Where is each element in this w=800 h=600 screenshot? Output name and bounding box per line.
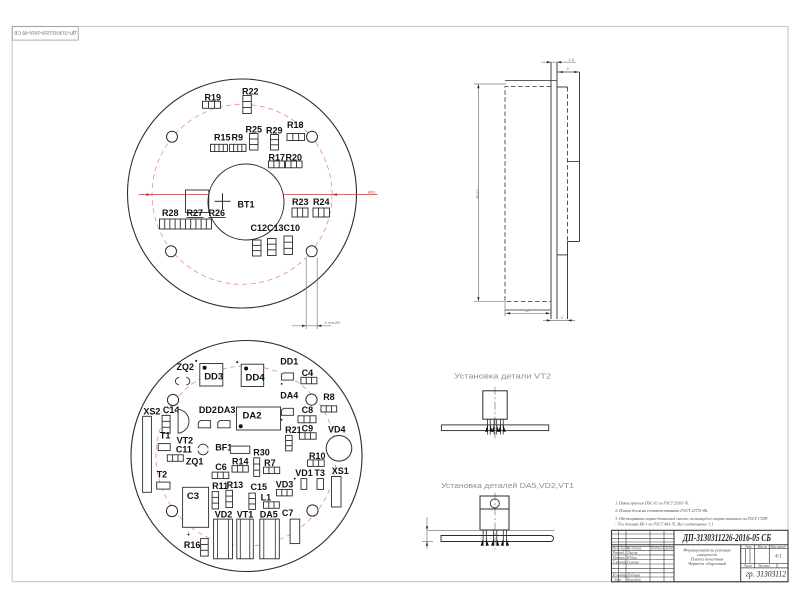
svg-text:Установка деталей DА5,VD2,VТ: Установка деталей DА5,VD2,VТ1 bbox=[441, 482, 574, 490]
svg-text:C15: C15 bbox=[251, 482, 268, 492]
svg-text:VD4: VD4 bbox=[328, 425, 346, 435]
svg-text:Разраб.: Разраб. bbox=[612, 551, 625, 555]
svg-text:4 отв.Ø3: 4 отв.Ø3 bbox=[325, 320, 342, 325]
svg-text:Чертёж сборочный: Чертёж сборочный bbox=[688, 561, 727, 566]
svg-text:T1: T1 bbox=[160, 431, 171, 441]
svg-text:Коробей: Коробей bbox=[626, 577, 641, 582]
svg-text:R16: R16 bbox=[184, 540, 201, 550]
svg-text:R15: R15 bbox=[214, 132, 231, 142]
svg-text:ДП-3130311226-2016-05 СБ: ДП-3130311226-2016-05 СБ bbox=[682, 533, 771, 544]
svg-text:XS1: XS1 bbox=[332, 466, 349, 476]
svg-text:Подпись: Подпись bbox=[650, 547, 665, 551]
svg-text:R28: R28 bbox=[162, 208, 179, 218]
svg-text:DA4: DA4 bbox=[280, 391, 298, 401]
svg-text:DA2: DA2 bbox=[243, 411, 262, 422]
svg-text:Листов: Листов bbox=[757, 564, 770, 568]
svg-text:C11: C11 bbox=[176, 445, 192, 455]
svg-text:R19: R19 bbox=[205, 92, 222, 102]
svg-text:- 76 и бензина БР-1 по ГОСТ 44: - 76 и бензина БР-1 по ГОСТ 443-76. Всё … bbox=[615, 521, 713, 526]
svg-text:C4: C4 bbox=[302, 368, 314, 378]
svg-text:R7: R7 bbox=[264, 458, 276, 468]
svg-text:BF1: BF1 bbox=[215, 443, 232, 453]
svg-text:T2: T2 bbox=[157, 470, 168, 480]
svg-text:Сонова: Сонова bbox=[627, 560, 639, 564]
svg-text:R18: R18 bbox=[287, 120, 304, 130]
svg-text:Дубовик: Дубовик bbox=[626, 573, 640, 577]
svg-text:VD1: VD1 bbox=[295, 468, 313, 478]
svg-text:VT1: VT1 bbox=[237, 510, 254, 520]
svg-text:ZQ1: ZQ1 bbox=[186, 457, 204, 467]
svg-text:C10: C10 bbox=[284, 223, 301, 233]
svg-text:Юдин: Юдин bbox=[626, 556, 637, 560]
svg-text:+: + bbox=[187, 532, 191, 539]
svg-text:12: 12 bbox=[525, 308, 530, 313]
svg-text:Масса: Масса bbox=[757, 545, 768, 549]
svg-text:VD2: VD2 bbox=[215, 510, 233, 520]
svg-text:R22: R22 bbox=[242, 86, 259, 96]
svg-text:1. Паять припоем ПОС-61 по ГОС: 1. Паять припоем ПОС-61 по ГОСТ 21931-76… bbox=[615, 501, 689, 506]
svg-text:ZQ2: ZQ2 bbox=[177, 362, 195, 372]
svg-text:C8: C8 bbox=[302, 405, 314, 415]
svg-text:C13: C13 bbox=[267, 223, 284, 233]
svg-text:Масштаб: Масштаб bbox=[770, 545, 786, 549]
svg-text:R8: R8 bbox=[323, 392, 335, 402]
svg-text:BT1: BT1 bbox=[238, 200, 255, 210]
svg-text:4:1: 4:1 bbox=[775, 555, 782, 560]
svg-text:R29: R29 bbox=[266, 125, 283, 135]
svg-text:R25: R25 bbox=[246, 124, 263, 134]
svg-text:Лит.: Лит. bbox=[744, 545, 753, 549]
svg-text:Т.контр.: Т.контр. bbox=[613, 560, 627, 564]
svg-text:DD4: DD4 bbox=[246, 373, 266, 384]
svg-text:Н.контр.: Н.контр. bbox=[612, 573, 628, 577]
svg-text:VD3: VD3 bbox=[276, 480, 294, 490]
svg-text:L1: L1 bbox=[261, 492, 272, 502]
svg-text:1,5: 1,5 bbox=[569, 57, 575, 62]
svg-text:Ø91: Ø91 bbox=[368, 189, 376, 194]
svg-text:DD3: DD3 bbox=[204, 372, 223, 383]
svg-text:Провер.: Провер. bbox=[612, 556, 626, 560]
svg-text:DA3: DA3 bbox=[217, 405, 235, 415]
svg-text:T3: T3 bbox=[314, 468, 325, 478]
svg-text:C3: C3 bbox=[187, 491, 199, 502]
svg-text:C9: C9 bbox=[302, 424, 314, 434]
svg-text:R26: R26 bbox=[209, 208, 226, 218]
svg-text:Дата: Дата bbox=[664, 547, 674, 551]
svg-text:C12: C12 bbox=[251, 223, 268, 233]
svg-text:Установка детали VТ2: Установка детали VТ2 bbox=[454, 373, 551, 380]
svg-text:Лысов: Лысов bbox=[626, 551, 638, 555]
svg-text:R23: R23 bbox=[292, 197, 309, 207]
svg-text:Утв.: Утв. bbox=[614, 578, 622, 582]
svg-text:R13: R13 bbox=[227, 480, 244, 490]
svg-text:R24: R24 bbox=[313, 197, 330, 207]
svg-text:C7: C7 bbox=[282, 508, 294, 518]
svg-text:DD2: DD2 bbox=[199, 405, 217, 415]
svg-text:DD1: DD1 bbox=[280, 356, 298, 366]
svg-text:C14: C14 bbox=[163, 405, 180, 415]
svg-text:DA5: DA5 bbox=[260, 510, 278, 520]
svg-text:гр. 31303112: гр. 31303112 bbox=[746, 569, 786, 578]
svg-text:C6: C6 bbox=[215, 462, 227, 472]
svg-text:2. Плата должна соответствоват: 2. Плата должна соответствовать ГОСТ 237… bbox=[615, 508, 708, 513]
svg-text:R9: R9 bbox=[232, 132, 244, 142]
svg-text:R27: R27 bbox=[187, 208, 204, 218]
svg-text:Лист: Лист bbox=[743, 564, 753, 568]
svg-text:R30: R30 bbox=[253, 448, 270, 458]
svg-text:XS2: XS2 bbox=[143, 407, 160, 417]
svg-text:Ø110: Ø110 bbox=[475, 188, 480, 198]
svg-text:№ докум.: № докум. bbox=[626, 547, 642, 551]
svg-text:R14: R14 bbox=[232, 457, 249, 467]
svg-text:ДП-3130311226-2016-05 СБ: ДП-3130311226-2016-05 СБ bbox=[14, 30, 76, 36]
